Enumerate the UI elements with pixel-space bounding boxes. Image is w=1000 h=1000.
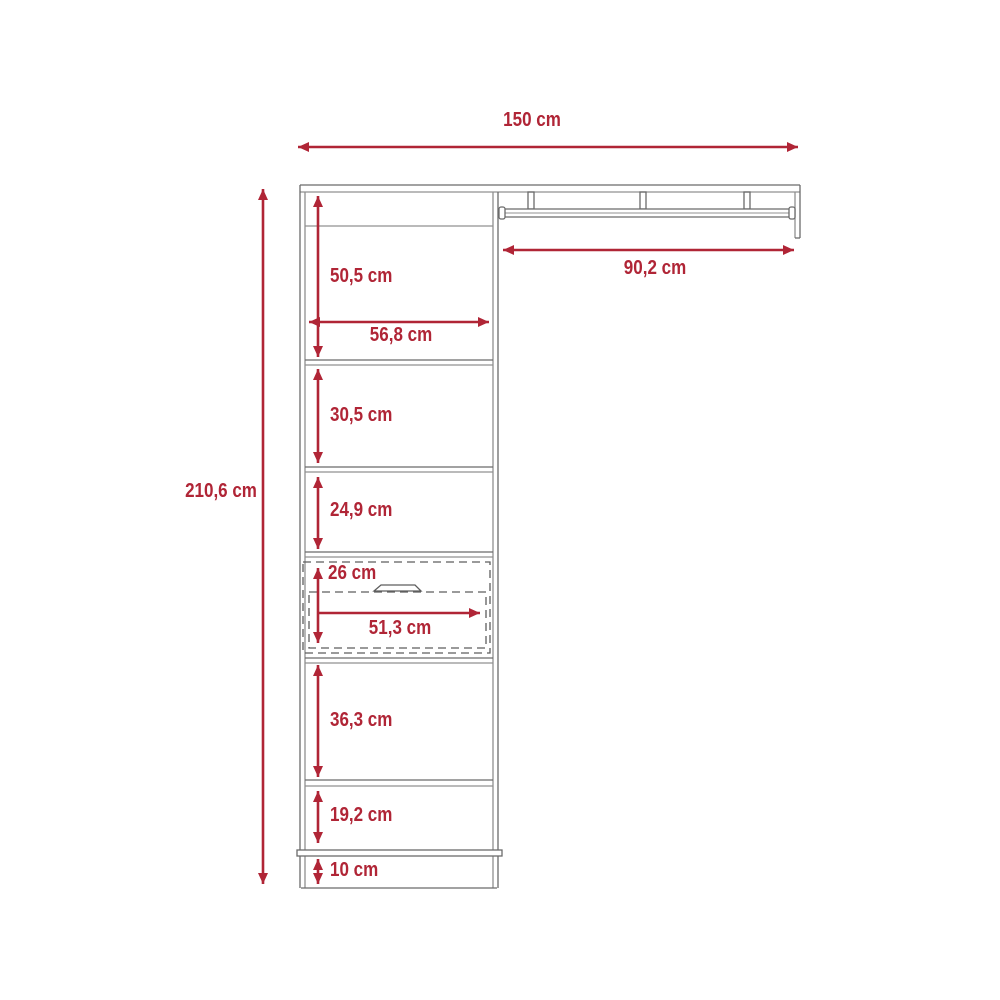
rod-cap-right bbox=[789, 207, 795, 219]
dim-label-interior-width: 56,8 cm bbox=[370, 325, 432, 346]
dim-label-overall-height: 210,6 cm bbox=[185, 481, 257, 502]
dim-label-drawer-interior-width: 51,3 cm bbox=[369, 618, 431, 639]
rod-cap-left bbox=[499, 207, 505, 219]
dim-label-drawer-front-height: 26 cm bbox=[328, 563, 376, 584]
rod-bracket-right bbox=[744, 192, 750, 209]
drawing-linework bbox=[0, 0, 1000, 1000]
dim-label-rod-section-width: 90,2 cm bbox=[624, 258, 686, 279]
dim-label-second-section-height: 30,5 cm bbox=[330, 405, 392, 426]
plinth-board bbox=[297, 850, 502, 856]
drawer-handle bbox=[374, 585, 421, 591]
hanging-rod-assembly bbox=[499, 185, 800, 238]
dim-label-top-section-height: 50,5 cm bbox=[330, 266, 392, 287]
rod-bracket-middle bbox=[640, 192, 646, 209]
dim-label-third-section-height: 24,9 cm bbox=[330, 500, 392, 521]
rod-bracket-left bbox=[528, 192, 534, 209]
dim-label-lower-section-height: 36,3 cm bbox=[330, 710, 392, 731]
cabinet-structure bbox=[297, 185, 800, 888]
dim-label-bottom-shelf-height: 19,2 cm bbox=[330, 805, 392, 826]
dim-label-base-height: 10 cm bbox=[330, 860, 378, 881]
technical-drawing-canvas: 150 cm 210,6 cm 90,2 cm 50,5 cm 56,8 cm … bbox=[0, 0, 1000, 1000]
dim-label-overall-width: 150 cm bbox=[503, 110, 561, 131]
